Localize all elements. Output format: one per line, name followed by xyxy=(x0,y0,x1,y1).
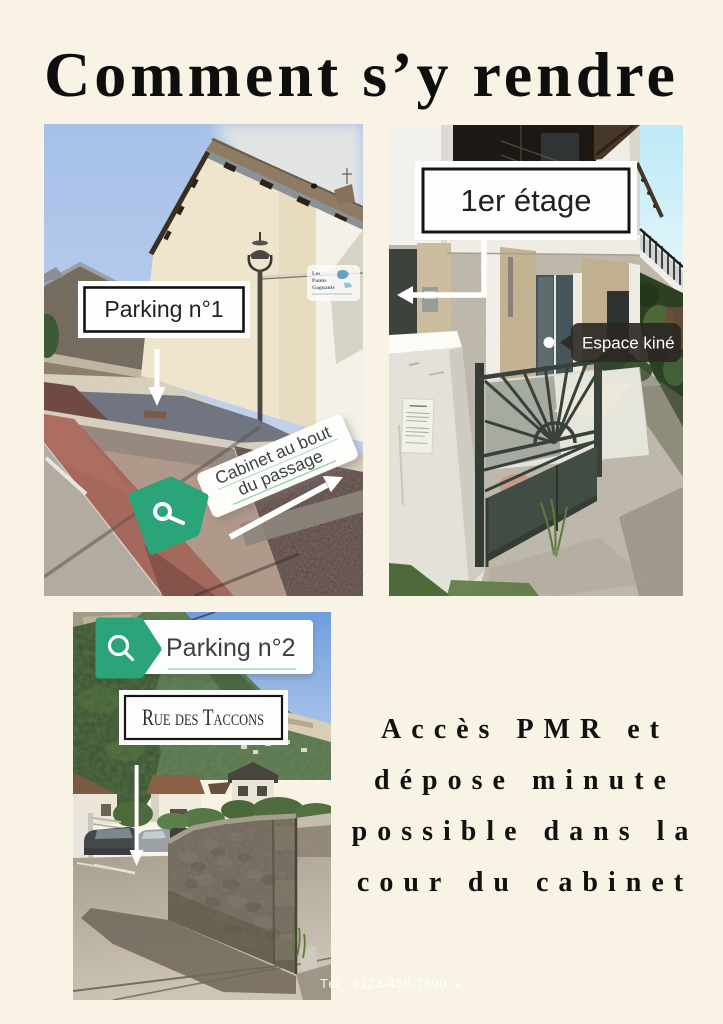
svg-text:Espace kiné: Espace kiné xyxy=(582,334,675,353)
svg-text:Les: Les xyxy=(312,271,320,277)
svg-text:Gagnants: Gagnants xyxy=(312,285,335,291)
svg-text:Parking n°1: Parking n°1 xyxy=(104,296,223,322)
svg-text:Parking n°2: Parking n°2 xyxy=(166,634,296,662)
svg-text:Rue des Taccons: Rue des Taccons xyxy=(142,705,264,730)
svg-text:Points: Points xyxy=(312,278,327,284)
svg-text:1er étage: 1er étage xyxy=(461,183,592,218)
